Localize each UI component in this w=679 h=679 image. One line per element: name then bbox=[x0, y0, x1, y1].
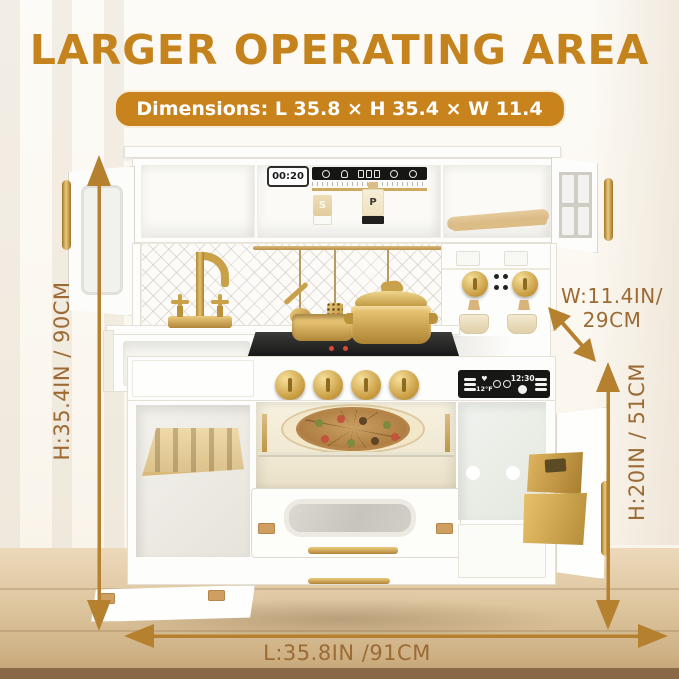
product-image: LARGER OPERATING AREA Dimensions: L 35.8… bbox=[0, 0, 679, 679]
height-lower-label: H:20IN / 51CM bbox=[625, 342, 649, 542]
width-label-line1: W:11.4IN/ bbox=[552, 284, 672, 308]
width-label: W:11.4IN/ 29CM bbox=[552, 284, 672, 332]
length-label: L:35.8IN /91CM bbox=[222, 641, 472, 665]
dimension-arrows bbox=[0, 0, 679, 679]
height-overall-label: H:35.4IN / 90CM bbox=[50, 271, 74, 471]
width-label-line2: 29CM bbox=[552, 308, 672, 332]
